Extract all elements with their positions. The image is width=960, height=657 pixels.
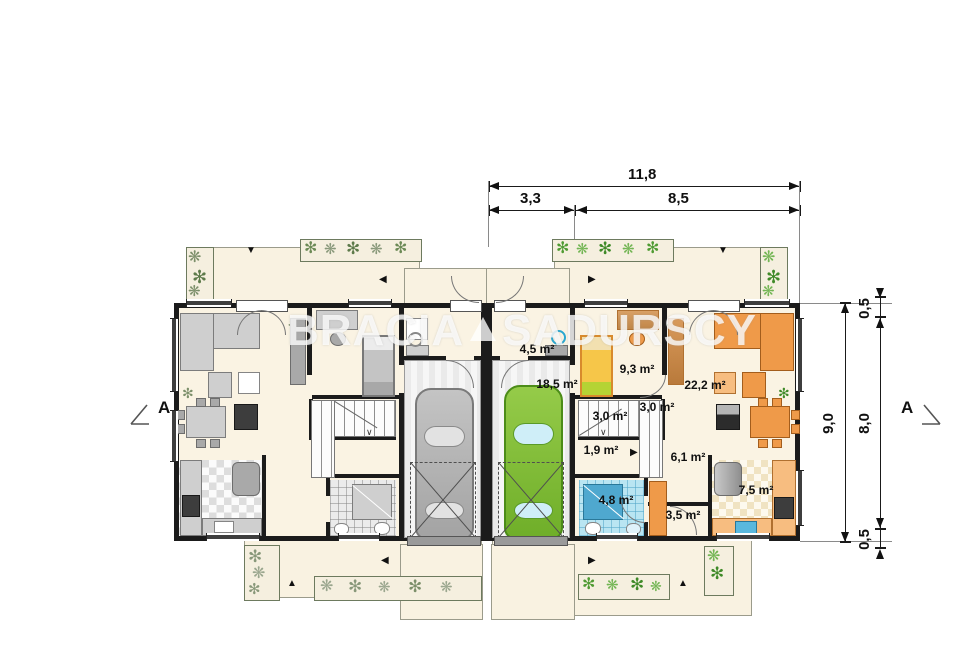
dim-line-top-segs xyxy=(489,210,799,211)
dim-line-side-segs xyxy=(880,297,881,548)
plant-icon: ❋ xyxy=(606,578,619,593)
chair xyxy=(196,439,206,448)
dim-line-top-total xyxy=(489,186,799,187)
stairs-direction-icon: ∨ xyxy=(366,428,373,437)
plant-icon: ❋ xyxy=(370,242,383,257)
desk-chair-right xyxy=(629,332,645,346)
plant-icon: ❋ xyxy=(188,284,201,299)
path-arrow-icon: ◀ xyxy=(379,275,387,285)
plant-icon: ❋ xyxy=(707,549,720,565)
section-marker-right: A xyxy=(901,398,943,428)
dim-top-seg-left: 3,3 xyxy=(520,190,541,207)
desk-chair-left xyxy=(330,332,346,346)
window xyxy=(206,533,260,541)
desk-left xyxy=(316,310,358,330)
plant-icon: ✻ xyxy=(248,548,262,565)
stove-right xyxy=(774,497,794,519)
bed-left xyxy=(362,335,395,397)
path-arrow-icon: ▲ xyxy=(678,579,688,589)
dim-arrow xyxy=(564,206,574,214)
parking-box-right xyxy=(498,462,564,538)
wall-bedroom-left xyxy=(307,303,312,375)
armchair-left xyxy=(208,372,232,398)
wall-kitchen-left xyxy=(262,455,266,538)
path-arrow-icon: ▶ xyxy=(588,556,596,566)
wall-bedroom-right xyxy=(662,303,667,375)
window xyxy=(348,299,392,307)
wardrobe-hall-right xyxy=(649,481,667,536)
window xyxy=(744,299,790,307)
armchair-right xyxy=(742,372,766,398)
path-arrow-icon: ◀ xyxy=(381,556,389,566)
plant-icon: ❋ xyxy=(188,250,201,266)
dim-arrow xyxy=(789,182,799,190)
room-label-bathroom: 4,8 m² xyxy=(599,493,634,507)
plant-icon: ❋ xyxy=(252,566,265,582)
witness-line xyxy=(488,181,489,247)
dim-arrow xyxy=(876,518,884,528)
chair xyxy=(758,439,768,448)
dining-table-right xyxy=(750,406,790,438)
window xyxy=(170,410,178,462)
dim-arrow xyxy=(577,206,587,214)
party-wall xyxy=(481,303,492,541)
closet-floor-left xyxy=(338,442,394,474)
stairs-left-unit-flight2 xyxy=(311,400,335,478)
desk-right xyxy=(617,310,659,330)
coffee-table-left xyxy=(238,372,260,394)
sofa-right-corner xyxy=(760,313,794,371)
plant-icon: ❋ xyxy=(576,242,589,257)
plant-icon: ✻ xyxy=(304,241,317,257)
chair xyxy=(772,439,782,448)
window xyxy=(170,318,178,392)
dim-side-top: 0,5 xyxy=(856,298,873,319)
window xyxy=(796,470,804,526)
dim-tick xyxy=(840,302,851,304)
wardrobe-left-living xyxy=(290,318,306,385)
plant-icon: ✻ xyxy=(248,582,261,597)
path-arrow-icon: ▲ xyxy=(287,579,297,589)
dim-arrow xyxy=(841,303,849,313)
wardrobe-right-living xyxy=(668,318,684,385)
window xyxy=(338,533,380,541)
dim-tick xyxy=(840,541,851,543)
stove-left xyxy=(182,495,200,517)
witness-line xyxy=(799,181,800,303)
wall-bath-top-right xyxy=(575,474,648,478)
room-label-stairs-upper: 3,0 m² xyxy=(640,400,675,414)
room-label-closet: 1,9 m² xyxy=(584,443,619,457)
plant-icon: ✻ xyxy=(710,565,724,582)
dim-side-total: 9,0 xyxy=(820,413,837,434)
room-label-living: 22,2 m² xyxy=(684,378,725,392)
window xyxy=(584,299,628,307)
chair xyxy=(758,398,768,407)
plant-icon: ✻ xyxy=(182,386,194,400)
window xyxy=(596,533,638,541)
tv-cabinet-right xyxy=(716,404,740,430)
section-marker-line xyxy=(913,398,943,428)
plant-icon: ✻ xyxy=(394,241,407,257)
dim-tick xyxy=(875,528,886,530)
wall-bath-top-left xyxy=(326,474,399,478)
plant-icon: ❋ xyxy=(378,580,391,595)
chair xyxy=(791,424,800,434)
section-marker-letter: A xyxy=(158,398,170,418)
room-label-hall: 6,1 m² xyxy=(671,450,706,464)
path-arrow-icon: ▶ xyxy=(630,448,638,458)
chair xyxy=(791,410,800,420)
section-marker-letter: A xyxy=(901,398,913,418)
dim-arrow xyxy=(489,206,499,214)
room-label-stairs: 3,0 m² xyxy=(593,409,628,423)
room-label-garage: 18,5 m² xyxy=(536,377,577,391)
plant-icon: ✻ xyxy=(646,241,659,257)
chair xyxy=(210,398,220,407)
window xyxy=(716,533,770,541)
plant-icon: ❋ xyxy=(324,242,337,257)
path-arrow-icon: ▶ xyxy=(588,275,596,285)
plant-icon: ✻ xyxy=(598,240,612,257)
plant-icon: ❋ xyxy=(440,580,453,595)
dim-side-bottom: 0,5 xyxy=(856,529,873,550)
garage-door-left xyxy=(407,536,481,546)
floor-plan-canvas: 11,8 3,3 8,5 9,0 0,5 8,0 0,5 A A xyxy=(0,0,960,657)
chair xyxy=(196,398,206,407)
plant-icon: ❋ xyxy=(622,242,635,257)
window xyxy=(186,299,232,307)
section-marker-line xyxy=(128,398,158,428)
chair xyxy=(772,398,782,407)
plant-icon: ❋ xyxy=(320,579,333,595)
plant-icon: ❋ xyxy=(650,579,662,593)
dining-table-left xyxy=(186,406,226,438)
tv-cabinet-left xyxy=(234,404,258,430)
room-label-vestibule: 4,5 m² xyxy=(520,342,555,356)
room-label-bedroom: 9,3 m² xyxy=(620,362,655,376)
door-opening xyxy=(399,365,404,393)
drain-arrow-icon: ▼ xyxy=(718,246,728,256)
plant-icon: ✻ xyxy=(630,576,644,593)
garage-door-right xyxy=(494,536,568,546)
dim-arrow xyxy=(876,288,884,298)
parking-cross xyxy=(499,463,563,537)
window xyxy=(796,318,804,392)
plant-icon: ✻ xyxy=(346,240,360,257)
dim-arrow xyxy=(876,549,884,559)
plant-icon: ✻ xyxy=(556,241,569,257)
planter xyxy=(314,576,482,601)
plant-icon: ❋ xyxy=(762,284,775,299)
door-opening xyxy=(326,496,330,522)
room-label-storage: 3,5 m² xyxy=(666,508,701,522)
sofa-left-corner xyxy=(180,313,214,371)
wall-garage-right xyxy=(570,303,575,540)
plant-icon: ❋ xyxy=(762,250,775,266)
parking-box-left xyxy=(410,462,476,538)
stairs-direction-icon: ∨ xyxy=(600,428,607,437)
drain-arrow-icon: ▼ xyxy=(246,246,256,256)
parking-cross xyxy=(411,463,475,537)
bed-right xyxy=(580,335,613,397)
plant-icon: ✻ xyxy=(348,578,362,595)
dim-arrow xyxy=(489,182,499,190)
dim-top-seg-right: 8,5 xyxy=(668,190,689,207)
utility-meter-icon xyxy=(408,332,423,347)
chair xyxy=(210,439,220,448)
driveway-right xyxy=(491,544,575,620)
fridge-left xyxy=(232,462,260,496)
section-marker-left: A xyxy=(128,398,170,428)
kitchen-sink-left xyxy=(214,521,234,533)
dim-arrow xyxy=(876,318,884,328)
plant-icon: ✻ xyxy=(408,578,422,595)
dim-side-mid: 8,0 xyxy=(856,413,873,434)
wall-garage-left xyxy=(399,303,404,540)
room-label-kitchen: 7,5 m² xyxy=(739,483,774,497)
dim-line-side-total xyxy=(845,303,846,542)
dim-top-total: 11,8 xyxy=(628,166,656,183)
dim-arrow xyxy=(789,206,799,214)
plant-icon: ✻ xyxy=(582,577,595,593)
